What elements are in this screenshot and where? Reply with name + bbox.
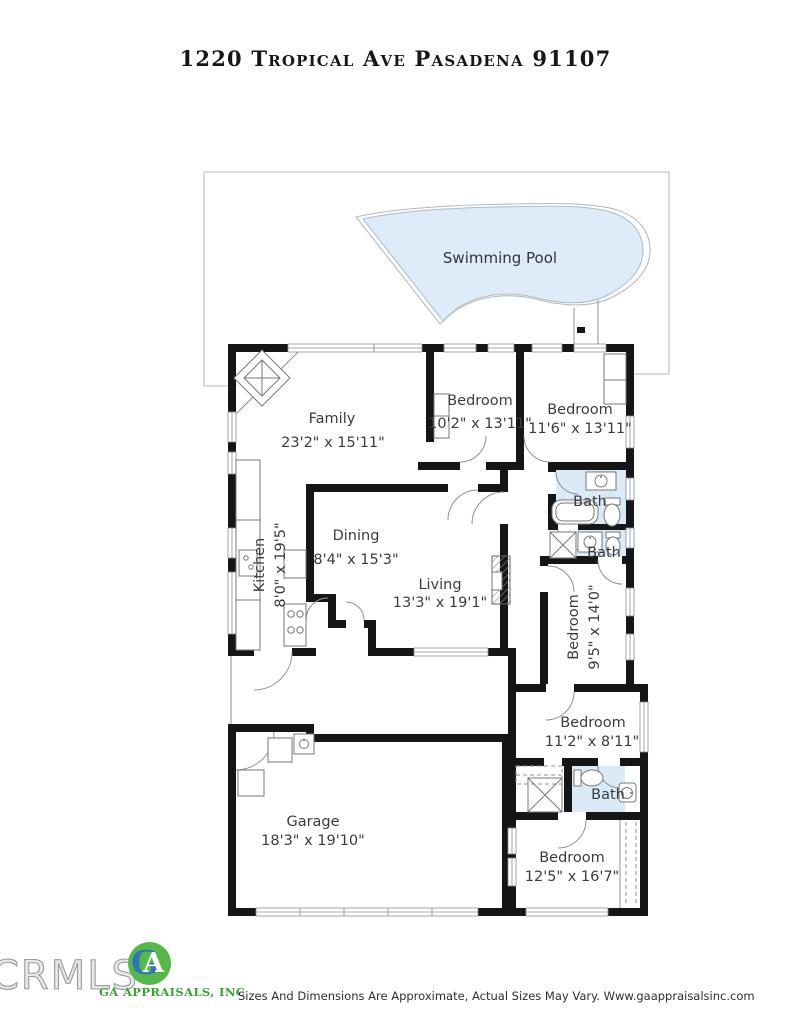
room-label-bedroom-lower-right: Bedroom (560, 715, 626, 731)
room-label-dining: Dining (333, 528, 380, 544)
closet-shelves-bedroom-top-right (604, 354, 626, 404)
room-dims-garage: 18'3" x 19'10" (261, 833, 365, 849)
room-dims-bedroom-top-middle: 10'2" x 13'11" (428, 416, 532, 432)
floor-plan-page: 1220 Tropical Ave Pasadena 91107 Swimmin… (0, 0, 791, 1024)
room-label-bedroom-bottom: Bedroom (539, 850, 605, 866)
room-dims-bedroom-lower-right: 11'2" x 8'11" (545, 734, 639, 750)
swimming-pool-shape: Swimming Pool (356, 203, 650, 324)
floor-plan-canvas: Swimming Pool (0, 0, 791, 1024)
wardrobe-dashed-lines (620, 820, 636, 908)
room-label-bath-lower: Bath (591, 787, 625, 803)
pool-steps (574, 300, 598, 344)
garage-door-band (256, 908, 478, 916)
room-label-bedroom-top-middle: Bedroom (447, 393, 513, 409)
room-dims-bedroom-bottom: 12'5" x 16'7" (525, 869, 619, 885)
footer-disclaimer: Sizes And Dimensions Are Approximate, Ac… (238, 989, 755, 1003)
room-label-bedroom-right: Bedroom (566, 594, 582, 660)
room-dims-dining: 8'4" x 15'3" (313, 552, 398, 568)
room-dims-bedroom-top-right: 11'6" x 13'11" (528, 421, 632, 437)
bath-lower-toilet-icon (574, 770, 603, 786)
storage-box-icon (238, 770, 264, 796)
room-label-garage: Garage (286, 814, 339, 830)
room-label-living: Living (418, 577, 461, 593)
washer-icon (268, 738, 292, 762)
room-dims-living: 13'3" x 19'1" (393, 595, 487, 611)
room-label-kitchen: Kitchen (252, 538, 268, 593)
room-label-bath-upper: Bath (573, 494, 607, 510)
bath-upper-sink-icon (586, 472, 616, 490)
living-fireplace-icon (492, 556, 510, 604)
room-dims-kitchen: 8'0" x 19'5" (273, 522, 289, 607)
closet-x-icon-hall (550, 532, 576, 558)
ga-appraisals-logo-icon: G A (128, 942, 171, 985)
closet-x-icon-lower (528, 778, 562, 812)
room-label-bedroom-top-right: Bedroom (547, 402, 613, 418)
family-fireplace-icon (234, 350, 298, 414)
room-label-bath-middle: Bath (587, 545, 621, 561)
room-dims-bedroom-right: 9'5" x 14'0" (587, 584, 603, 669)
ga-appraisals-company-name: GA APPRAISALS, INC (99, 985, 245, 999)
pool-label: Swimming Pool (443, 249, 557, 267)
laundry-sink-icon (294, 734, 314, 754)
room-dims-family: 23'2" x 15'11" (281, 435, 385, 451)
stove-icon (284, 604, 306, 646)
room-label-family: Family (309, 411, 356, 427)
ga-monogram-a: A (143, 948, 164, 979)
